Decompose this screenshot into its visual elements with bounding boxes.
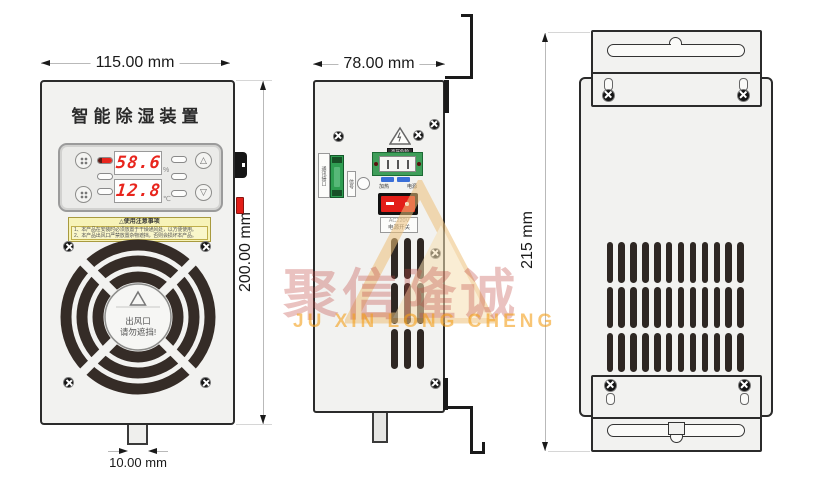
screw-channel xyxy=(606,393,615,405)
humidity-value: 58.6 xyxy=(114,153,161,173)
signal-label: 信号 xyxy=(347,171,356,197)
wire-marker xyxy=(381,177,394,182)
screw-icon xyxy=(413,130,424,141)
side-red-indicator xyxy=(236,197,244,214)
dim-front-height-label: 200.00 mm xyxy=(237,207,255,297)
terminal-face xyxy=(334,167,340,187)
dim-arrow-down-icon xyxy=(542,442,548,451)
back-vent-band xyxy=(607,333,745,372)
dim-arrow-right-icon xyxy=(221,60,230,66)
dim-tab-line xyxy=(108,451,119,452)
pcb-screw-icon xyxy=(417,162,421,166)
back-vent-band xyxy=(607,287,745,328)
front-bottom-tab xyxy=(127,425,148,445)
slot-center-tab xyxy=(668,422,685,435)
fan-label-line2: 请勿遮挡! xyxy=(120,327,156,337)
dim-extension-line xyxy=(236,424,272,425)
button-glyph-icon xyxy=(80,191,88,199)
dim-arrow-left-icon xyxy=(41,60,50,66)
dim-arrow-right-icon xyxy=(436,61,445,67)
dim-arrow-up-icon xyxy=(260,81,266,90)
dim-back-height-line xyxy=(545,33,546,451)
mount-ear-bottom xyxy=(470,406,473,454)
power-switch xyxy=(378,193,418,215)
controller-panel: 58.6 % 12.8 ℃ △ ▽ xyxy=(58,143,223,212)
side-vent-band xyxy=(391,238,424,279)
status-indicator-1 xyxy=(97,157,113,164)
screw-icon xyxy=(738,379,751,392)
temperature-unit: ℃ xyxy=(163,195,171,203)
switch-off-mark xyxy=(405,202,409,206)
side-switch-tab xyxy=(235,152,247,178)
cable-hole xyxy=(357,177,370,190)
side-view: 高压危险 通讯接口 信号 加热 电 xyxy=(313,80,445,413)
screw-icon xyxy=(429,119,440,130)
technical-drawing-canvas: 115.00 mm 78.00 mm 200.00 mm 215 mm 10.0… xyxy=(0,0,820,504)
terminal-block xyxy=(330,155,344,198)
up-button: △ xyxy=(195,152,212,169)
switch-slot xyxy=(242,163,245,167)
humidity-display: 58.6 xyxy=(114,151,162,175)
mount-ear-top xyxy=(445,76,473,79)
pin-slot xyxy=(407,160,409,169)
product-title: 智能除湿装置 xyxy=(40,102,235,127)
dim-extension-line xyxy=(236,80,272,81)
terminal-right-label: 电源 xyxy=(407,183,417,190)
pin-slot xyxy=(397,160,399,169)
switch-label: AC220V 电源开关 xyxy=(380,217,418,233)
back-view xyxy=(560,30,790,460)
screw-icon xyxy=(333,131,344,142)
query-button xyxy=(75,186,92,203)
dim-arrow-left-icon xyxy=(313,61,322,67)
mount-ear-top xyxy=(444,80,449,113)
set-button xyxy=(75,152,92,169)
dim-tab-width-label: 10.00 mm xyxy=(104,455,172,470)
high-voltage-triangle-icon xyxy=(389,126,411,146)
pin-slot xyxy=(387,160,389,169)
dim-arrow-down-icon xyxy=(260,415,266,424)
status-indicator-5 xyxy=(171,173,187,180)
dim-side-width-label: 78.00 mm xyxy=(338,55,419,73)
dim-front-width-label: 115.00 mm xyxy=(91,54,180,72)
dim-front-height-line xyxy=(263,81,264,424)
fan-grille: 出风口 请勿遮挡! xyxy=(58,237,218,397)
terminal-cap xyxy=(332,190,342,196)
screw-icon xyxy=(430,248,441,259)
front-view: 智能除湿装置 58.6 % 12.8 ℃ △ ▽ △使用注意事项 xyxy=(40,80,235,425)
pcb-connector xyxy=(379,156,416,172)
screw-icon xyxy=(430,378,441,389)
mount-ear-top xyxy=(461,14,473,17)
screw-icon xyxy=(604,379,617,392)
switch-on-mark xyxy=(386,202,394,205)
indicator-lit xyxy=(98,158,112,163)
down-button: ▽ xyxy=(195,184,212,201)
wire-marker xyxy=(397,177,410,182)
dim-tab-line xyxy=(157,451,168,452)
notch-join xyxy=(671,44,681,49)
side-vent-band xyxy=(391,283,424,324)
side-enclosure xyxy=(313,80,445,413)
button-glyph-icon xyxy=(80,157,88,165)
screw-channel xyxy=(740,393,749,405)
terminal-labels: 加热 电源 xyxy=(379,183,417,190)
bracket-edge-line xyxy=(593,72,760,74)
side-bottom-tab xyxy=(372,413,388,443)
comm-port-text: 通讯接口 xyxy=(321,166,328,186)
switch-rocker xyxy=(381,196,415,212)
status-indicator-6 xyxy=(171,190,187,197)
signal-text: 信号 xyxy=(348,179,355,189)
pcb-screw-icon xyxy=(374,162,378,166)
side-vent-band xyxy=(391,329,424,369)
mount-ear-bottom xyxy=(482,442,485,454)
dim-arrow-left-icon xyxy=(148,448,157,454)
temperature-value: 12.8 xyxy=(114,181,161,201)
back-vent-band xyxy=(607,242,745,283)
humidity-unit: % xyxy=(163,167,169,174)
caution-title: 使用注意事项 xyxy=(124,219,160,225)
bracket-edge-line xyxy=(593,417,760,419)
pcb-board xyxy=(372,152,423,176)
comm-port-label: 通讯接口 xyxy=(318,153,330,198)
temperature-display: 12.8 xyxy=(114,179,162,203)
terminal-cap xyxy=(332,157,342,163)
screw-icon xyxy=(602,89,615,102)
dim-arrow-up-icon xyxy=(542,33,548,42)
dim-arrow-right-icon xyxy=(119,448,128,454)
fan-label-line1: 出风口 xyxy=(125,316,151,326)
status-indicator-2 xyxy=(97,173,113,180)
terminal-left-label: 加热 xyxy=(379,183,389,190)
dim-back-height-label: 215 mm xyxy=(519,206,537,274)
status-indicator-4 xyxy=(171,156,187,163)
status-indicator-3 xyxy=(97,188,113,195)
mount-ear-top xyxy=(470,14,473,79)
screw-icon xyxy=(737,89,750,102)
switch-name: 电源开关 xyxy=(388,225,410,232)
switch-voltage: AC220V xyxy=(389,218,410,225)
